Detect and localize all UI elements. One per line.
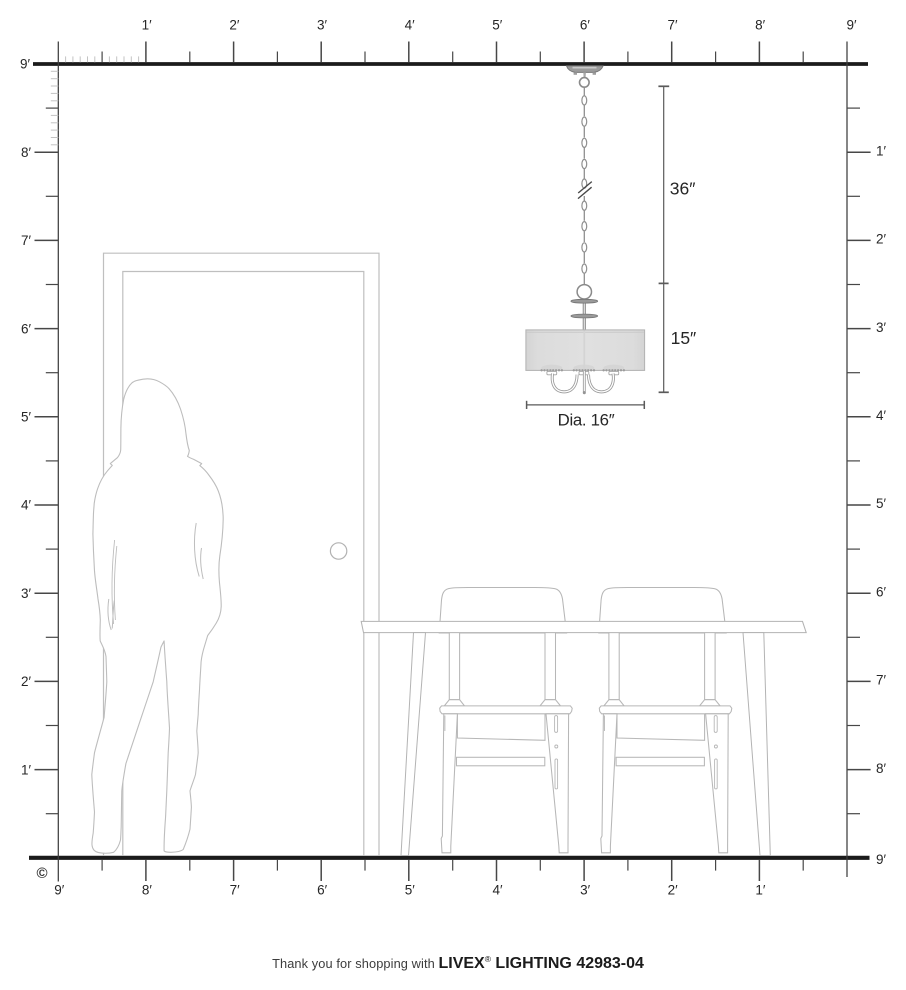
svg-text:3′: 3′ <box>580 883 591 898</box>
svg-text:6′: 6′ <box>876 584 887 599</box>
svg-text:4′: 4′ <box>876 408 887 423</box>
svg-text:7′: 7′ <box>21 233 32 248</box>
svg-text:4′: 4′ <box>492 883 503 898</box>
svg-text:©: © <box>37 865 48 882</box>
svg-text:8′: 8′ <box>142 883 153 898</box>
svg-text:1′: 1′ <box>142 18 153 33</box>
svg-text:2′: 2′ <box>668 883 679 898</box>
svg-text:2′: 2′ <box>229 18 240 33</box>
svg-text:4′: 4′ <box>405 18 416 33</box>
svg-text:1′: 1′ <box>876 143 887 158</box>
svg-text:8′: 8′ <box>755 18 766 33</box>
svg-text:Dia. 16″: Dia. 16″ <box>558 410 615 429</box>
svg-text:7′: 7′ <box>667 18 678 33</box>
svg-text:9′: 9′ <box>846 18 857 33</box>
svg-text:2′: 2′ <box>876 232 887 247</box>
svg-text:3′: 3′ <box>876 320 887 335</box>
svg-text:8′: 8′ <box>21 145 32 160</box>
svg-text:1′: 1′ <box>755 883 766 898</box>
svg-text:9′: 9′ <box>54 883 65 898</box>
svg-text:3′: 3′ <box>317 18 328 33</box>
svg-text:15″: 15″ <box>671 328 697 348</box>
svg-text:3′: 3′ <box>21 586 32 601</box>
svg-text:5′: 5′ <box>405 883 416 898</box>
svg-text:6′: 6′ <box>21 321 32 336</box>
svg-text:5′: 5′ <box>21 410 32 425</box>
svg-text:Thank you for shopping with LI: Thank you for shopping with LIVEX® LIGHT… <box>272 954 644 972</box>
svg-text:8′: 8′ <box>876 761 887 776</box>
svg-text:4′: 4′ <box>21 498 32 513</box>
svg-text:6′: 6′ <box>580 18 591 33</box>
svg-text:5′: 5′ <box>492 18 503 33</box>
svg-text:7′: 7′ <box>876 673 887 688</box>
svg-text:9′: 9′ <box>20 57 31 72</box>
svg-text:7′: 7′ <box>230 883 241 898</box>
svg-text:2′: 2′ <box>21 674 32 689</box>
svg-text:36″: 36″ <box>670 179 696 199</box>
svg-text:1′: 1′ <box>21 762 32 777</box>
svg-text:9′: 9′ <box>876 852 887 867</box>
svg-text:5′: 5′ <box>876 496 887 511</box>
svg-text:6′: 6′ <box>317 883 328 898</box>
